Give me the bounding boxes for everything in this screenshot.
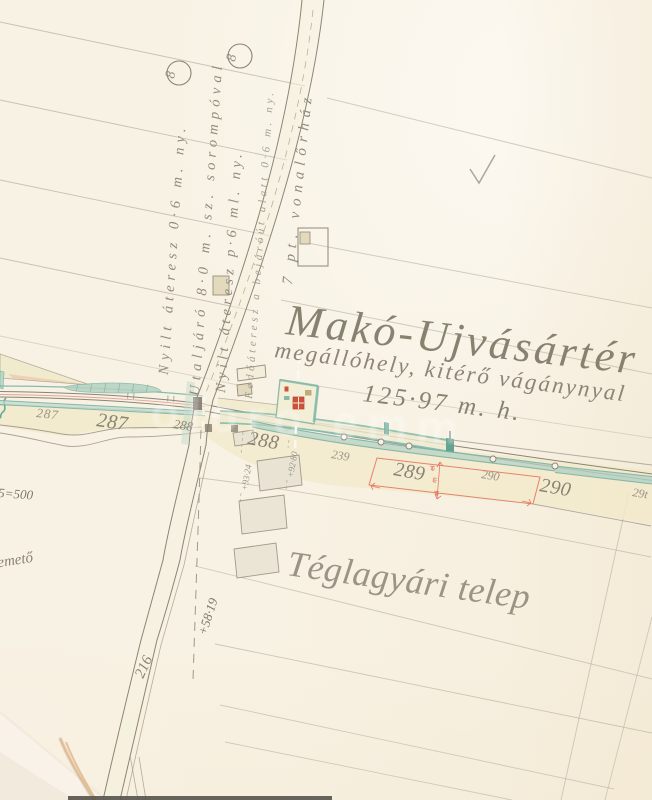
svg-text:239: 239: [331, 447, 351, 464]
svg-text:287: 287: [36, 405, 60, 422]
svg-text:290: 290: [481, 467, 501, 484]
svg-text:287: 287: [95, 409, 130, 435]
svg-text:5=500: 5=500: [0, 485, 34, 502]
svg-text:29t: 29t: [632, 485, 650, 501]
